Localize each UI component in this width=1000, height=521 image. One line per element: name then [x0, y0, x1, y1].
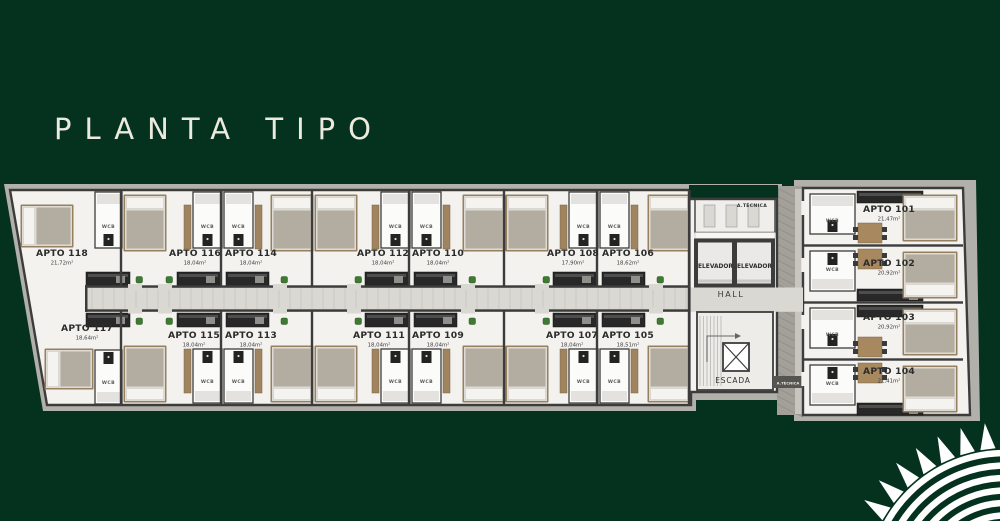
door-opening [461, 308, 475, 314]
wcb-label: WCB [577, 224, 590, 230]
wall [220, 190, 222, 286]
unit-area-label: 18,04m² [183, 342, 206, 349]
kitchen-counter [226, 272, 269, 286]
unit-area-label: 21,41m² [878, 378, 901, 385]
unit-area-label: 18,04m² [427, 260, 450, 267]
door-opening [347, 308, 361, 314]
elevator-2 [737, 243, 771, 284]
door-opening [273, 284, 287, 290]
wcb-label: WCB [102, 380, 115, 386]
kitchen-counter [553, 272, 596, 286]
door-opening [801, 315, 806, 329]
wcb-room: WCB [810, 308, 855, 348]
plant [355, 318, 362, 325]
unit-area-label: 18,04m² [427, 342, 450, 349]
plant [543, 277, 550, 284]
unit-name-label: APTO 109 [412, 330, 464, 341]
plant [136, 318, 143, 325]
dining-table [853, 223, 887, 243]
wall [311, 190, 313, 286]
wcb-room: WCB [810, 194, 855, 234]
unit-name-label: APTO 112 [357, 248, 409, 259]
wall [596, 310, 598, 405]
wcb-label: WCB [608, 224, 621, 230]
bed [124, 346, 167, 403]
kitchen-counter [177, 313, 220, 327]
bed [45, 349, 94, 390]
wcb-room: WCB [224, 349, 253, 403]
wall [85, 285, 88, 312]
unit-name-label: APTO 118 [36, 248, 88, 259]
wcb-room: WCB [810, 365, 855, 405]
door-opening [128, 308, 142, 314]
door-opening [158, 308, 172, 314]
wall [311, 310, 313, 405]
elevator-1 [698, 243, 732, 284]
unit-area-label: 18,51m² [617, 342, 640, 349]
escada-label: ESCADA [715, 376, 751, 385]
door-opening [128, 284, 142, 290]
unit-name-label: APTO 117 [61, 323, 113, 334]
desk [255, 205, 262, 249]
plant [657, 277, 664, 284]
unit-area-label: 18,62m² [617, 260, 640, 267]
wcb-room: WCB [381, 192, 410, 248]
desk [372, 205, 379, 249]
bed [124, 195, 167, 252]
kitchen-counter [602, 313, 645, 327]
wcb-label: WCB [826, 332, 839, 338]
unit-name-label: APTO 107 [546, 330, 598, 341]
desk [560, 349, 567, 393]
plant [543, 318, 550, 325]
wall [408, 310, 410, 405]
wcb-room: WCB [600, 192, 629, 248]
unit-name-label: APTO 104 [863, 366, 915, 377]
unit-name-label: APTO 106 [602, 248, 654, 259]
door-opening [158, 284, 172, 290]
unit-name-label: APTO 114 [225, 248, 277, 259]
desk [631, 349, 638, 393]
unit-area-label: 18,04m² [368, 342, 391, 349]
wall [803, 301, 963, 303]
door-opening [535, 284, 549, 290]
door-opening [801, 258, 806, 272]
plant [166, 277, 173, 284]
kitchen-counter [602, 272, 645, 286]
unit-name-label: APTO 103 [863, 312, 915, 323]
unit-area-label: 20,92m² [878, 270, 901, 277]
wcb-room: WCB [569, 349, 598, 403]
wall [120, 310, 122, 405]
wall [803, 244, 963, 246]
kitchen-counter [365, 272, 408, 286]
elevator-2-label: ELEVADOR [737, 264, 772, 270]
wall [688, 190, 691, 405]
wcb-label: WCB [420, 224, 433, 230]
bed [506, 346, 549, 403]
kitchen-counter [414, 272, 457, 286]
unit-name-label: APTO 115 [168, 330, 220, 341]
desk [255, 349, 262, 393]
door-opening [801, 201, 806, 215]
bed [648, 346, 691, 403]
sun-ray [980, 423, 995, 450]
wcb-label: WCB [102, 224, 115, 230]
wcb-room: WCB [810, 251, 855, 291]
bed [648, 195, 691, 252]
sunburst-decoration-icon [839, 422, 1000, 521]
dining-table [853, 337, 887, 357]
hall-floor [690, 288, 803, 312]
unit-name-label: APTO 105 [602, 330, 654, 341]
plant [166, 318, 173, 325]
tecnica-side-label: A.TÉCNICA [777, 381, 800, 386]
wall [220, 310, 222, 405]
unit-area-label: 18,04m² [372, 260, 395, 267]
wcb-label: WCB [201, 379, 214, 385]
bed [463, 346, 506, 403]
desk [631, 205, 638, 249]
kitchen-counter [86, 272, 130, 286]
unit-area-label: 21,47m² [878, 216, 901, 223]
wcb-label: WCB [389, 379, 402, 385]
hall-label: HALL [718, 290, 745, 299]
door-opening [649, 308, 663, 314]
bed [506, 195, 549, 252]
plant [281, 277, 288, 284]
wcb-label: WCB [826, 218, 839, 224]
wcb-room: WCB [412, 192, 441, 248]
wcb-room: WCB [193, 192, 222, 248]
unit-name-label: APTO 110 [412, 248, 464, 259]
bed [271, 195, 314, 252]
plant [281, 318, 288, 325]
tecnica-equipment [726, 205, 737, 227]
unit-name-label: APTO 113 [225, 330, 277, 341]
bed [21, 205, 74, 248]
kitchen-counter [553, 313, 596, 327]
unit-area-label: 20,92m² [878, 324, 901, 331]
unit-area-label: 18,04m² [240, 260, 263, 267]
wcb-room: WCB [569, 192, 598, 248]
tecnica-equipment [704, 205, 715, 227]
unit-name-label: APTO 102 [863, 258, 915, 269]
plant [469, 318, 476, 325]
door-opening [273, 308, 287, 314]
unit-name-label: APTO 101 [863, 204, 915, 215]
core-roof-band [689, 185, 778, 198]
desk [443, 349, 450, 393]
desk [184, 205, 191, 249]
floor-plan: WCBWCBWCBWCBWCBWCBWCBWCBWCBWCBWCBWCBWCBW… [0, 0, 1000, 521]
plant [355, 277, 362, 284]
wcb-label: WCB [389, 224, 402, 230]
unit-area-label: 18,64m² [76, 335, 99, 342]
unit-area-label: 18,04m² [184, 260, 207, 267]
wcb-room: WCB [95, 192, 122, 248]
wcb-label: WCB [232, 224, 245, 230]
door-opening [461, 284, 475, 290]
wcb-room: WCB [95, 350, 122, 404]
sun-ray [960, 428, 975, 455]
desk [560, 205, 567, 249]
wcb-label: WCB [826, 381, 839, 387]
wcb-room: WCB [600, 349, 629, 403]
wall [503, 190, 505, 286]
desk [443, 205, 450, 249]
unit-area-label: 17,90m² [562, 260, 585, 267]
desk [184, 349, 191, 393]
unit-name-label: APTO 108 [547, 248, 599, 259]
wcb-room: WCB [193, 349, 222, 403]
wcb-label: WCB [577, 379, 590, 385]
bed [315, 346, 358, 403]
wcb-room: WCB [412, 349, 441, 403]
kitchen-counter [414, 313, 457, 327]
wall [596, 190, 598, 286]
wall [86, 285, 690, 288]
wcb-room: WCB [224, 192, 253, 248]
corridor-and-hall [86, 288, 803, 312]
door-opening [801, 372, 806, 386]
unit-area-label: 18,04m² [561, 342, 584, 349]
bed [271, 346, 314, 403]
wcb-label: WCB [826, 267, 839, 273]
bed [903, 195, 958, 242]
unit-area-label: 18,04m² [240, 342, 263, 349]
core-shelf [695, 233, 775, 239]
wcb-label: WCB [608, 379, 621, 385]
elevator-1-door [698, 280, 732, 283]
bed [463, 195, 506, 252]
wall [803, 358, 963, 360]
desk [372, 349, 379, 393]
elevator-2-door [737, 280, 771, 283]
unit-name-label: APTO 111 [353, 330, 405, 341]
wall [120, 190, 122, 286]
bed [315, 195, 358, 252]
marketing-slide: PLANTA TIPO WCBWCBWCBWCBWCBWCBWCBWCBWCBW… [0, 0, 1000, 521]
wall [503, 310, 505, 405]
door-opening [535, 308, 549, 314]
wcb-room: WCB [381, 349, 410, 403]
sun-ray [938, 436, 956, 463]
kitchen-counter [365, 313, 408, 327]
door-opening [347, 284, 361, 290]
elevator-1-label: ELEVADOR [698, 264, 733, 270]
wall [408, 190, 410, 286]
plant [136, 277, 143, 284]
kitchen-counter [226, 313, 269, 327]
wall [86, 309, 690, 312]
plant [657, 318, 664, 325]
kitchen-counter [177, 272, 220, 286]
plant [469, 277, 476, 284]
wcb-label: WCB [201, 224, 214, 230]
unit-area-label: 21,72m² [51, 260, 74, 267]
corridor [86, 288, 690, 310]
door-opening [649, 284, 663, 290]
wcb-label: WCB [232, 379, 245, 385]
wcb-label: WCB [420, 379, 433, 385]
unit-name-label: APTO 116 [169, 248, 221, 259]
